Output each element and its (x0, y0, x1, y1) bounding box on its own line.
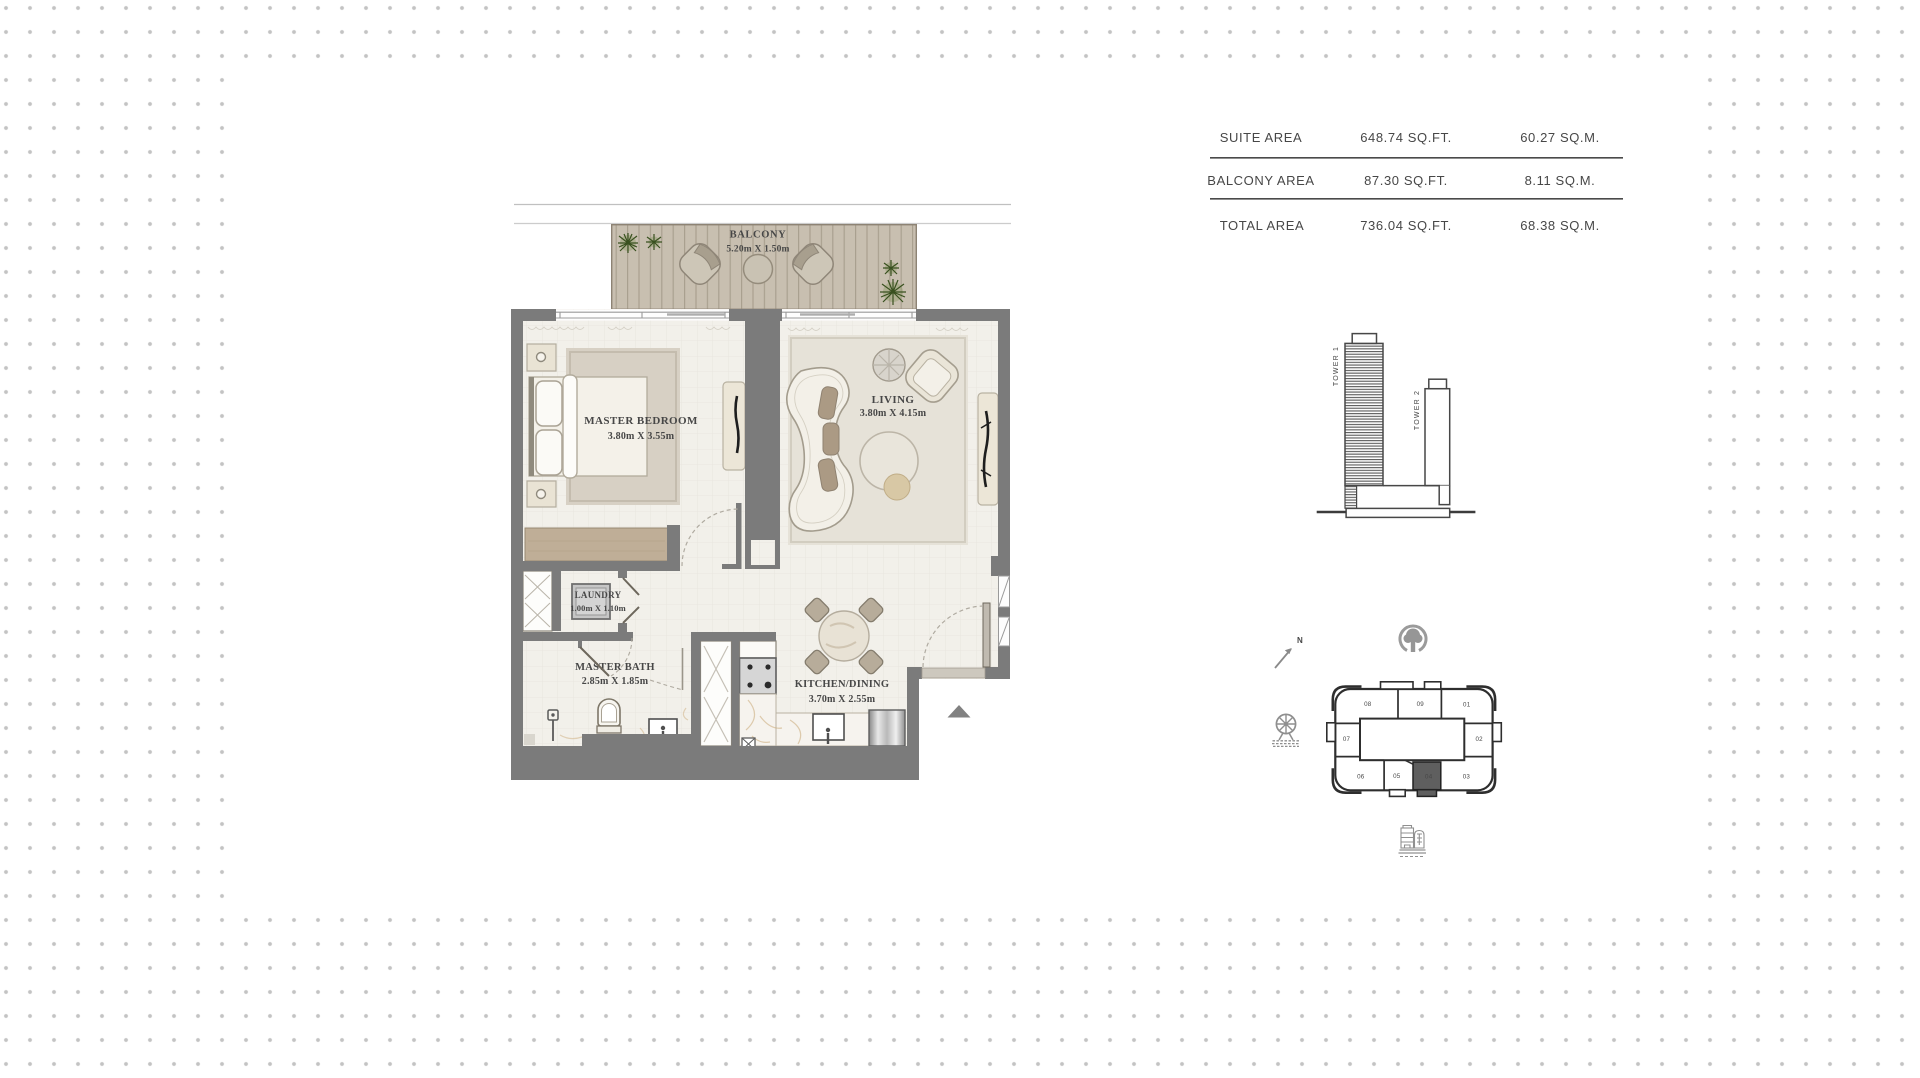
svg-text:05: 05 (1393, 773, 1401, 780)
svg-text:SUITE AREA: SUITE AREA (1220, 130, 1303, 145)
svg-text:3.80m X 4.15m: 3.80m X 4.15m (860, 408, 927, 419)
svg-text:5.20m X 1.50m: 5.20m X 1.50m (726, 245, 789, 255)
svg-text:MASTER BEDROOM: MASTER BEDROOM (584, 415, 698, 427)
svg-text:TOTAL AREA: TOTAL AREA (1220, 218, 1305, 233)
svg-text:87.30 SQ.FT.: 87.30 SQ.FT. (1364, 173, 1448, 188)
svg-text:648.74 SQ.FT.: 648.74 SQ.FT. (1360, 130, 1452, 145)
svg-text:3.70m X 2.55m: 3.70m X 2.55m (809, 694, 876, 705)
svg-text:MASTER BATH: MASTER BATH (575, 662, 655, 673)
svg-text:736.04 SQ.FT.: 736.04 SQ.FT. (1360, 218, 1452, 233)
svg-text:TOWER 1: TOWER 1 (1333, 346, 1340, 386)
svg-text:N: N (1297, 636, 1303, 645)
svg-text:01: 01 (1463, 702, 1471, 709)
svg-text:2.85m X 1.85m: 2.85m X 1.85m (582, 676, 649, 687)
svg-text:1.00m X 1.10m: 1.00m X 1.10m (570, 603, 626, 613)
svg-text:03: 03 (1463, 773, 1471, 780)
svg-text:08: 08 (1364, 701, 1372, 708)
svg-text:3.80m X 3.55m: 3.80m X 3.55m (608, 431, 675, 442)
svg-text:02: 02 (1475, 736, 1483, 743)
svg-text:BALCONY: BALCONY (730, 230, 787, 241)
svg-text:60.27 SQ.M.: 60.27 SQ.M. (1520, 130, 1600, 145)
svg-text:KITCHEN/DINING: KITCHEN/DINING (795, 679, 889, 690)
svg-text:09: 09 (1417, 701, 1425, 708)
svg-text:LAUNDRY: LAUNDRY (575, 590, 622, 600)
svg-text:68.38 SQ.M.: 68.38 SQ.M. (1520, 218, 1600, 233)
svg-text:06: 06 (1357, 773, 1365, 780)
svg-text:07: 07 (1343, 736, 1351, 743)
svg-text:BALCONY AREA: BALCONY AREA (1207, 173, 1314, 188)
svg-text:04: 04 (1425, 773, 1433, 780)
svg-text:LIVING: LIVING (872, 394, 915, 406)
svg-text:8.11 SQ.M.: 8.11 SQ.M. (1525, 173, 1596, 188)
svg-text:TOWER 2: TOWER 2 (1414, 390, 1421, 430)
